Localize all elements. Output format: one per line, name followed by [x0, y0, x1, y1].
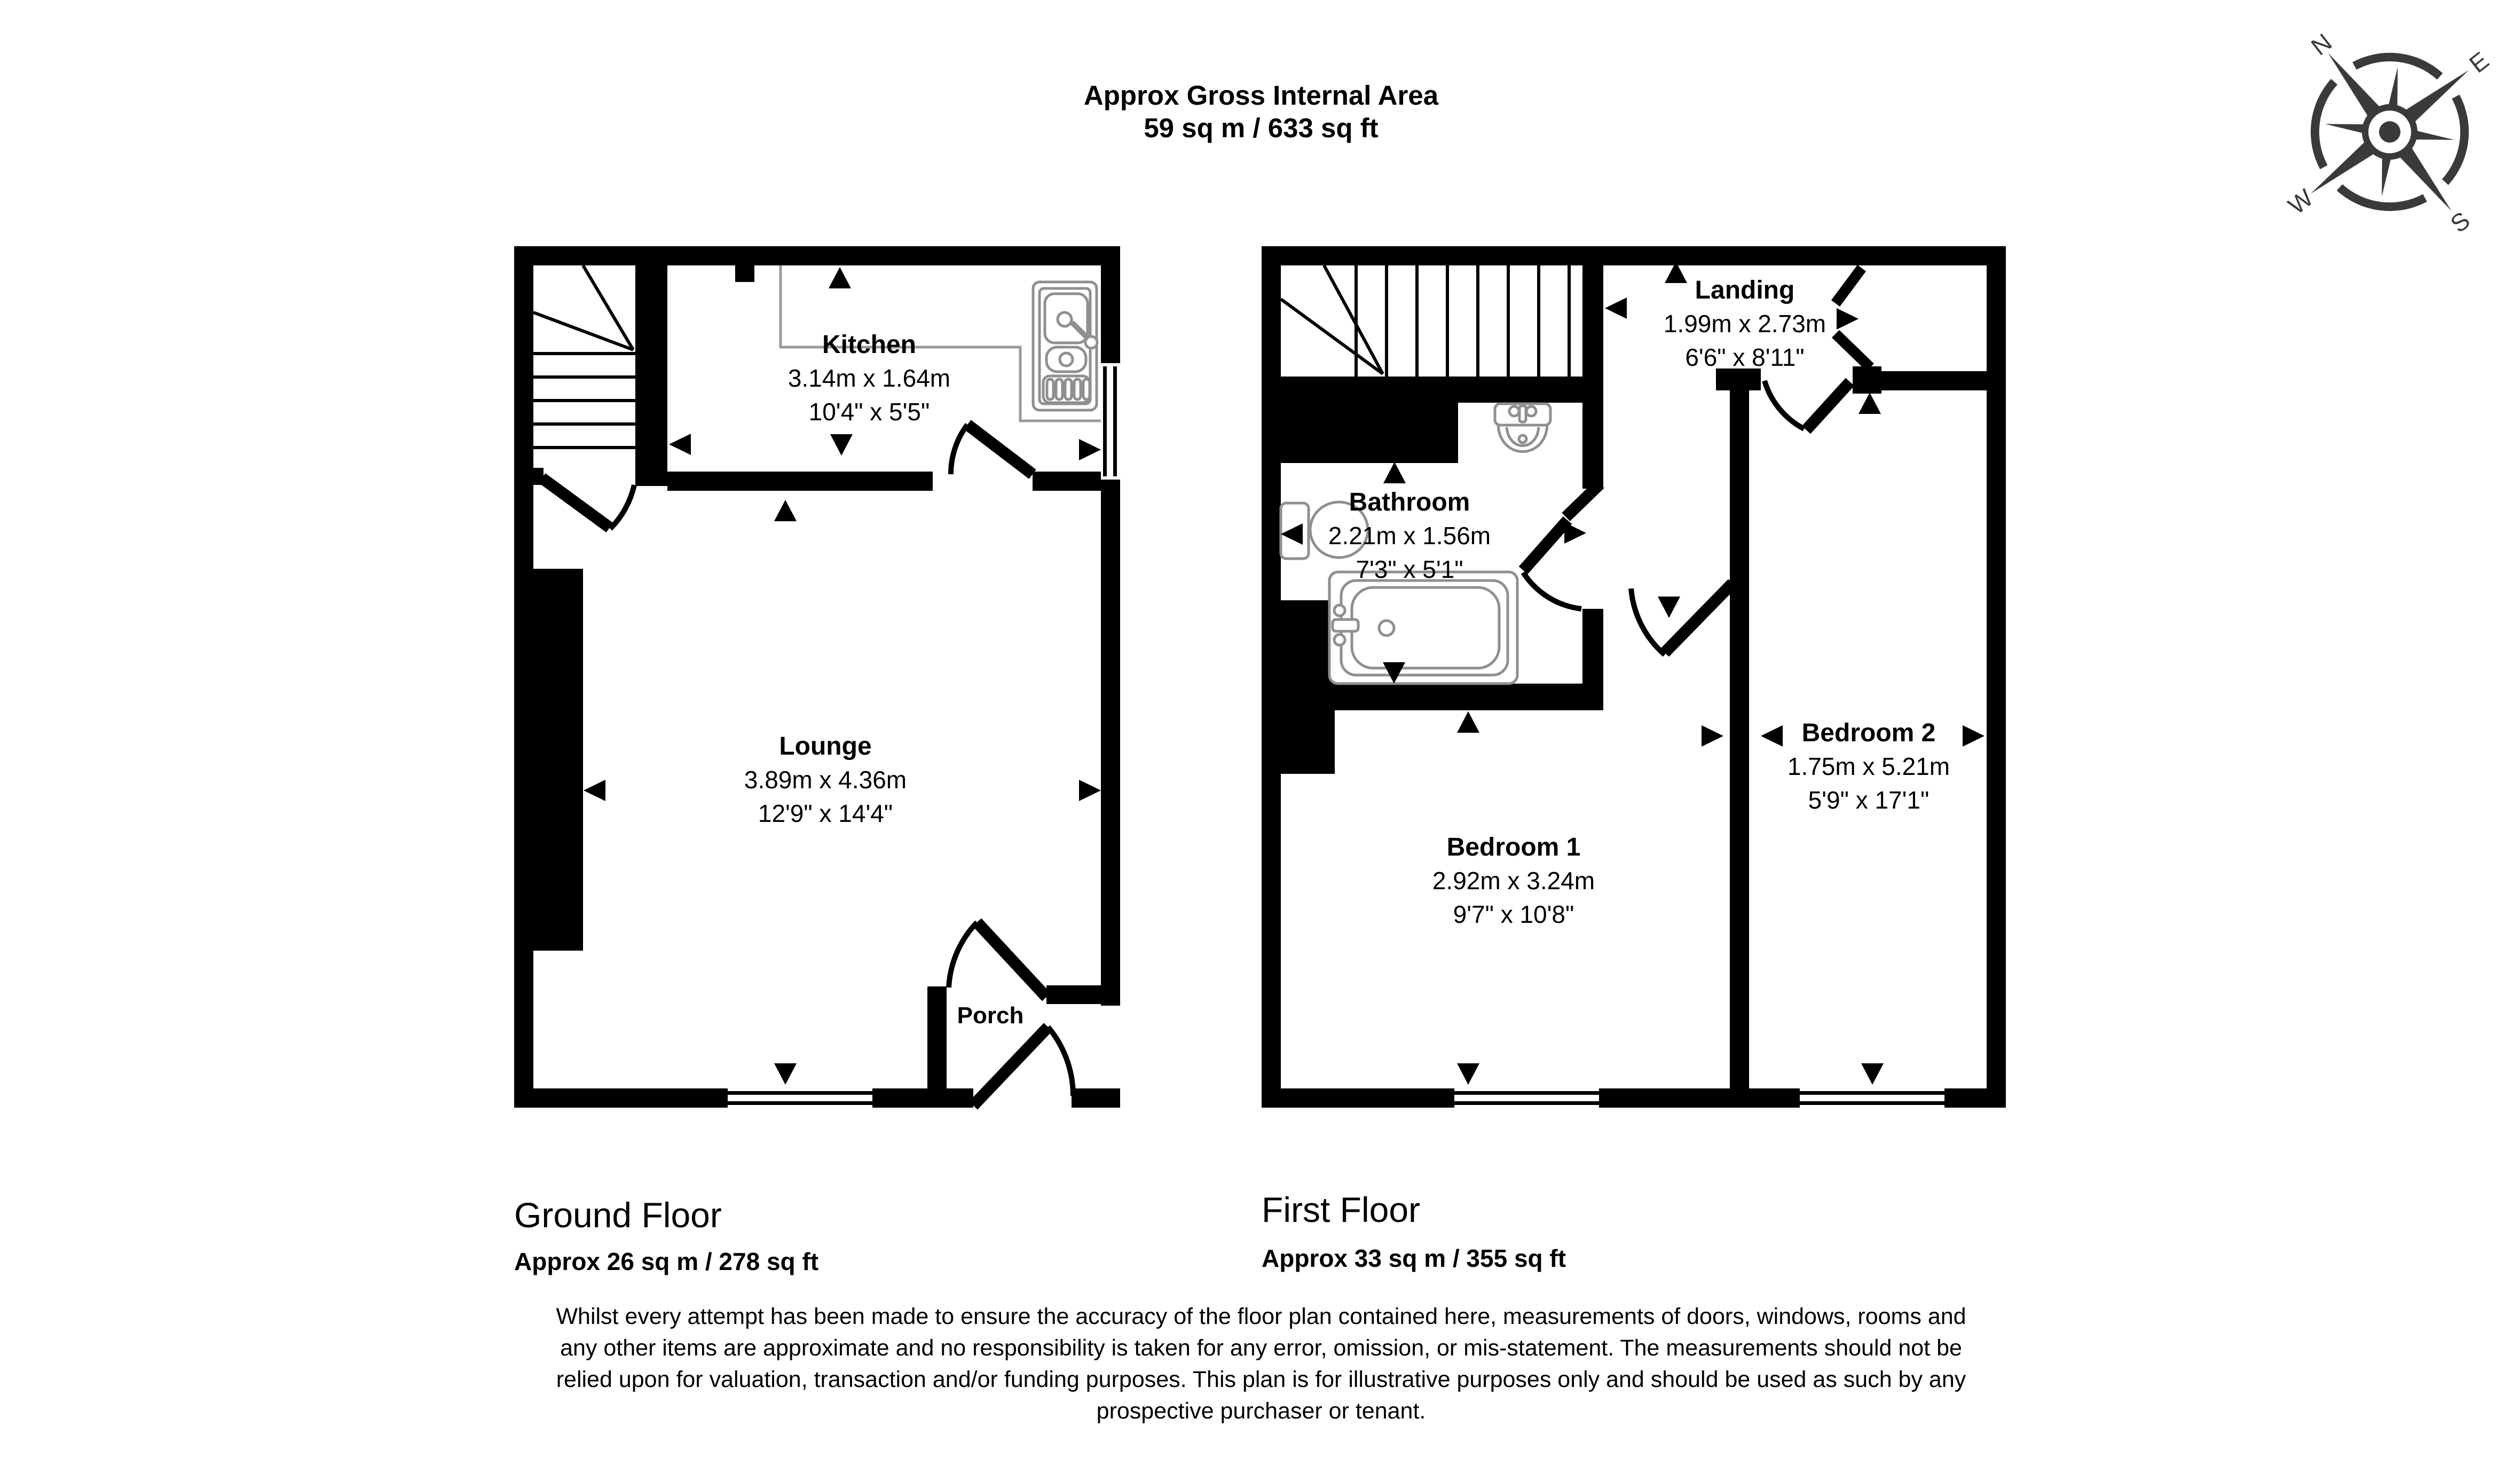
basin-icon [1495, 404, 1550, 452]
room-name: Lounge [639, 730, 1012, 763]
stairs-icon-ground [533, 265, 635, 448]
first-floor-title: First Floor [1262, 1191, 1420, 1228]
window-kitchen-right [1101, 363, 1120, 480]
room-name: Bedroom 1 [1327, 830, 1700, 864]
room-metric: 2.92m x 3.24m [1327, 864, 1700, 898]
ground-floor-area: Approx 26 sq m / 278 sq ft [514, 1248, 818, 1275]
floorplan-drawing: N E S W [0, 0, 2520, 1466]
ground-floor-title: Ground Floor [514, 1196, 722, 1234]
room-label-porch: Porch [910, 1002, 1070, 1029]
disclaimer-line: any other items are approximate and no r… [474, 1332, 2049, 1364]
room-name: Landing [1585, 273, 1905, 307]
room-metric: 1.75m x 5.21m [1682, 750, 2056, 783]
compass-icon: N E S W [2215, 0, 2520, 310]
chimney-breast [533, 569, 583, 951]
compass-e-label: E [2464, 46, 2494, 79]
window-bedroom1 [1454, 1088, 1599, 1108]
window-bedroom2 [1800, 1088, 1944, 1108]
room-imperial: 12'9" x 14'4" [639, 797, 1012, 830]
bath-icon [1329, 572, 1517, 684]
compass-s-label: S [2445, 206, 2475, 238]
floor-plan-first [1262, 246, 2006, 1108]
disclaimer-line: Whilst every attempt has been made to en… [474, 1301, 2049, 1332]
room-name: Bedroom 2 [1682, 716, 2056, 750]
page-title: Approx Gross Internal Area 59 sq m / 633… [474, 79, 2049, 144]
room-name: Porch [910, 1002, 1070, 1029]
disclaimer-line: relied upon for valuation, transaction a… [474, 1364, 2049, 1396]
room-label-bedroom2: Bedroom 2 1.75m x 5.21m 5'9" x 17'1" [1682, 716, 2056, 817]
disclaimer-line: prospective purchaser or tenant. [474, 1396, 2049, 1427]
room-imperial: 9'7" x 10'8" [1327, 898, 1700, 931]
title-line2: 59 sq m / 633 sq ft [474, 112, 2049, 144]
room-label-bathroom: Bathroom 2.21m x 1.56m 7'3" x 5'1" [1223, 485, 1596, 586]
room-metric: 3.89m x 4.36m [639, 763, 1012, 797]
room-name: Bathroom [1223, 485, 1596, 519]
compass-n-label: N [2306, 28, 2337, 60]
room-metric: 2.21m x 1.56m [1223, 519, 1596, 553]
room-metric: 1.99m x 2.73m [1585, 307, 1905, 341]
room-metric: 3.14m x 1.64m [682, 362, 1056, 395]
first-floor-area: Approx 33 sq m / 355 sq ft [1262, 1244, 1566, 1272]
compass-w-label: W [2283, 183, 2319, 219]
window-ground-bottom [728, 1088, 872, 1108]
title-line1: Approx Gross Internal Area [474, 79, 2049, 112]
room-label-lounge: Lounge 3.89m x 4.36m 12'9" x 14'4" [639, 730, 1012, 830]
room-label-bedroom1: Bedroom 1 2.92m x 3.24m 9'7" x 10'8" [1327, 830, 1700, 931]
room-imperial: 7'3" x 5'1" [1223, 553, 1596, 586]
room-imperial: 5'9" x 17'1" [1682, 783, 2056, 817]
room-name: Kitchen [682, 328, 1056, 362]
disclaimer-text: Whilst every attempt has been made to en… [474, 1301, 2049, 1427]
room-label-kitchen: Kitchen 3.14m x 1.64m 10'4" x 5'5" [682, 328, 1056, 429]
floorplan-page: N E S W Approx Gross Internal Area 59 sq… [0, 0, 2520, 1466]
stairs-icon-first [1281, 265, 1569, 377]
room-label-landing: Landing 1.99m x 2.73m 6'6" x 8'11" [1585, 273, 1905, 374]
room-imperial: 10'4" x 5'5" [682, 395, 1056, 429]
room-imperial: 6'6" x 8'11" [1585, 341, 1905, 374]
